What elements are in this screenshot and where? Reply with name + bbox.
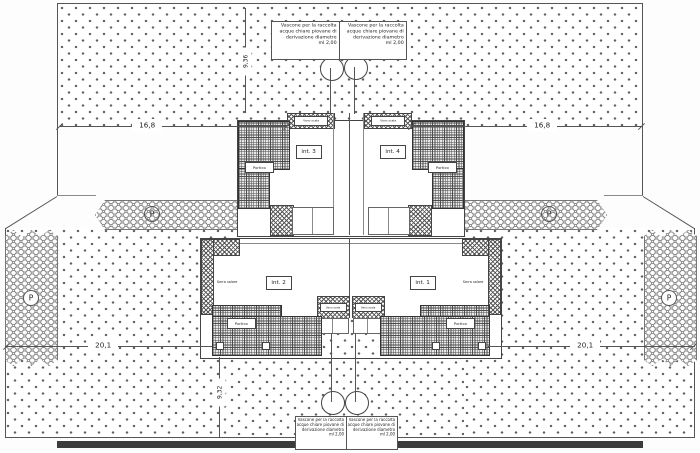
- portico-pier: [216, 342, 224, 350]
- stairwell-label-text: Vano scala: [303, 119, 319, 122]
- frame-left-diagonal: [5, 196, 57, 229]
- frame-top-line: [57, 3, 643, 4]
- portico-label: Portico: [428, 162, 457, 173]
- sunspace-label: Serra solare: [212, 277, 242, 286]
- downpipe-top-left: [330, 68, 331, 114]
- note-text: Vascone per la raccolta acque chiare pio…: [339, 23, 404, 46]
- portico-pier: [478, 342, 486, 350]
- rainwater-note-top-left: Vascone per la raccolta acque chiare pio…: [271, 21, 340, 60]
- dimension-label-top-right: 16,8: [527, 119, 557, 132]
- step-divider: [367, 319, 368, 333]
- downpipe-bottom-left: [331, 333, 332, 402]
- stair-block-upper-right: [408, 205, 432, 236]
- dimension-text: 9,36: [243, 55, 250, 68]
- rain-basin-circle-bottom-left: [321, 391, 345, 415]
- parking-marker-label: P: [667, 294, 672, 302]
- stairwell-label-text: Vano scala: [361, 306, 375, 309]
- stairwell-label: Vano scala: [320, 303, 347, 312]
- sunspace-label-text: Serra solare: [463, 280, 484, 284]
- frame-left-upper-line: [57, 3, 58, 196]
- portico-label: Portico: [227, 318, 256, 329]
- parking-marker-label: P: [150, 210, 155, 218]
- parking-marker: P: [541, 206, 557, 222]
- step-divider: [388, 208, 389, 234]
- parking-marker-label: P: [29, 294, 34, 302]
- sunspace-label-text: Serra solare: [217, 280, 238, 284]
- portico-label-text: Portico: [235, 321, 248, 325]
- dimension-label-vertical-top: 9,36: [241, 48, 252, 76]
- unit-label-text: int. 1: [416, 280, 430, 286]
- stairwell-label-text: Vano scala: [326, 306, 340, 309]
- rainwater-note-bottom-right: Vascone per la raccolta acque chiare pio…: [346, 416, 398, 450]
- party-wall-upper: [349, 113, 350, 235]
- parking-marker: P: [23, 290, 39, 306]
- parking-marker: P: [661, 290, 677, 306]
- entry-steps-upper-right: [368, 207, 410, 235]
- stairwell-label: Vano scala: [294, 116, 328, 126]
- unit-label-text: int. 2: [272, 280, 286, 286]
- frame-left-step-line: [57, 195, 96, 196]
- stair-block-upper-left: [270, 205, 294, 236]
- unit-label-int2: int. 2: [266, 276, 292, 290]
- rainwater-note-top-right: Vascone per la raccolta acque chiare pio…: [339, 21, 407, 60]
- parking-marker: P: [144, 206, 160, 222]
- building-lower-top-band: [212, 243, 488, 244]
- dimension-label-vertical-bottom: 9,32: [215, 379, 226, 407]
- parking-strip-mid-right: [462, 200, 607, 230]
- gap-wall-upper-right: [363, 113, 364, 235]
- site-plan: P P P P Vano scala Vano scala Portico Po…: [0, 0, 700, 453]
- dimension-label-top-left: 16,8: [132, 119, 162, 132]
- dimension-text: 20,1: [95, 342, 111, 350]
- sunspace-label: Serra solare: [458, 277, 488, 286]
- stairwell-label-text: Vano scala: [380, 119, 396, 122]
- stairwell-label: Vano scala: [355, 303, 382, 312]
- dimension-text: 9,32: [217, 386, 224, 399]
- parking-strip-mid-left: [95, 200, 240, 230]
- portico-pier: [262, 342, 270, 350]
- unit-label-text: int. 4: [386, 149, 400, 155]
- wall-hatch-upper-right-lower: [432, 168, 464, 209]
- entry-steps-upper-left: [292, 207, 334, 235]
- wing-wall-lower-right-v: [488, 239, 501, 315]
- dimension-label-bottom-left: 20,1: [88, 339, 118, 352]
- wall-hatch-upper-left-lower: [238, 168, 270, 209]
- portico-label-text: Portico: [253, 165, 266, 169]
- unit-label-int3: int. 3: [296, 145, 322, 159]
- unit-label-text: int. 3: [302, 149, 316, 155]
- dimension-text: 20,1: [577, 342, 593, 350]
- dimension-line-top-left: [59, 126, 287, 127]
- rain-basin-circle-top-left: [320, 57, 344, 81]
- portico-label-text: Portico: [454, 321, 467, 325]
- downpipe-top-right: [354, 67, 355, 114]
- stairwell-label: Vano scala: [371, 116, 405, 126]
- note-text: Vascone per la raccolta acque chiare pio…: [347, 418, 395, 437]
- parking-marker-label: P: [547, 210, 552, 218]
- frame-right-diagonal: [643, 196, 695, 229]
- entry-steps-lower-left: [318, 318, 349, 334]
- dimension-text: 16,8: [534, 122, 550, 130]
- portico-label: Portico: [245, 162, 274, 173]
- dimension-label-bottom-right: 20,1: [570, 339, 600, 352]
- rain-basin-circle-bottom-right: [345, 391, 369, 415]
- step-divider: [312, 208, 313, 234]
- unit-label-int1: int. 1: [410, 276, 436, 290]
- portico-pier: [432, 342, 440, 350]
- rainwater-note-bottom-left: Vascone per la raccolta acque chiare pio…: [295, 416, 347, 450]
- dimension-text: 16,8: [139, 122, 155, 130]
- portico-label: Portico: [446, 318, 475, 329]
- note-text: Vascone per la raccolta acque chiare pio…: [271, 23, 337, 46]
- downpipe-bottom-right: [355, 333, 356, 402]
- step-divider: [332, 319, 333, 333]
- note-text: Vascone per la raccolta acque chiare pio…: [296, 418, 344, 437]
- frame-right-step-line: [604, 195, 643, 196]
- portico-label-text: Portico: [436, 165, 449, 169]
- frame-right-upper-line: [642, 3, 643, 196]
- unit-label-int4: int. 4: [380, 145, 406, 159]
